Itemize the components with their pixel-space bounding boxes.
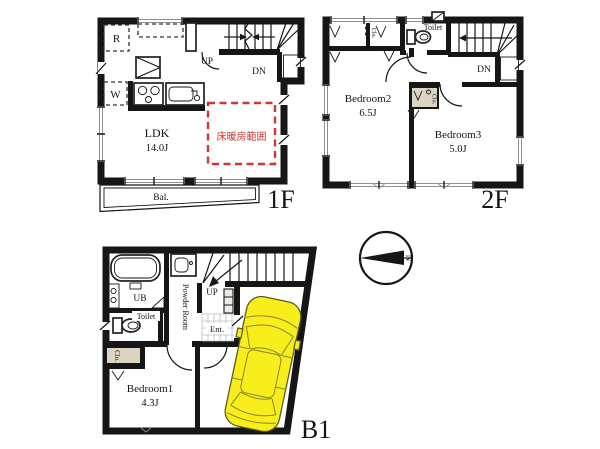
room-label-bedroom3: Bedroom3 [435, 129, 482, 141]
room-label-bedroom1: Bedroom1 [127, 383, 173, 395]
sink-icon [166, 83, 204, 105]
compass-icon: N [360, 232, 414, 284]
room-size-bedroom3: 5.0J [449, 144, 466, 155]
toilet-label-2f: Toilet [424, 23, 443, 32]
floor-label-2f: 2F [481, 185, 508, 214]
room-size-bedroom2: 6.5J [359, 108, 376, 119]
floorplan-b1: UB Powder Room Toilet Clo. Ent. [100, 250, 331, 444]
room-label-bedroom2: Bedroom2 [345, 93, 391, 105]
fridge-label: R [113, 33, 121, 45]
dn-label-2f: DN [477, 65, 491, 75]
balcony-outline [100, 185, 259, 212]
floor-heating-label: 床暖房範囲 [217, 130, 267, 143]
floorplan-2f: Clo. Toilet DN Clo. Bedroo [322, 12, 525, 214]
floorplan-canvas: UP DN R W LDK 14.0J 床暖房範囲 [0, 0, 600, 449]
entrance-label: Ent. [210, 324, 224, 334]
north-label: N [404, 255, 414, 262]
room-label-ldk: LDK [145, 126, 170, 140]
room-label-powder: Powder Room [181, 284, 190, 331]
room-size-ldk: 14.0J [146, 143, 168, 154]
room-size-bedroom1: 4.3J [141, 398, 158, 409]
stove-icon [134, 83, 163, 105]
floorplan-drawing: UP DN R W LDK 14.0J 床暖房範囲 [0, 0, 600, 449]
up-label-b1: UP [206, 287, 218, 297]
balcony-label: Bal. [153, 193, 169, 203]
closet-mid-label: Clo. [431, 94, 437, 105]
shelf-icon [136, 57, 160, 78]
closet-top-label: Clo. [370, 28, 376, 39]
dn-label-1f: DN [252, 67, 266, 77]
floor-label-b1: B1 [301, 415, 331, 444]
toilet-label-b1: Toilet [137, 312, 156, 321]
room-label-ub: UB [133, 294, 146, 304]
washbasin-icon [171, 254, 196, 276]
floorplan-1f: UP DN R W LDK 14.0J 床暖房範囲 [96, 17, 306, 214]
closet-label-b1: Clo. [113, 350, 121, 362]
floor-label-1f: 1F [267, 185, 294, 214]
up-label-1f: UP [201, 57, 213, 67]
washer-label: W [110, 89, 121, 101]
